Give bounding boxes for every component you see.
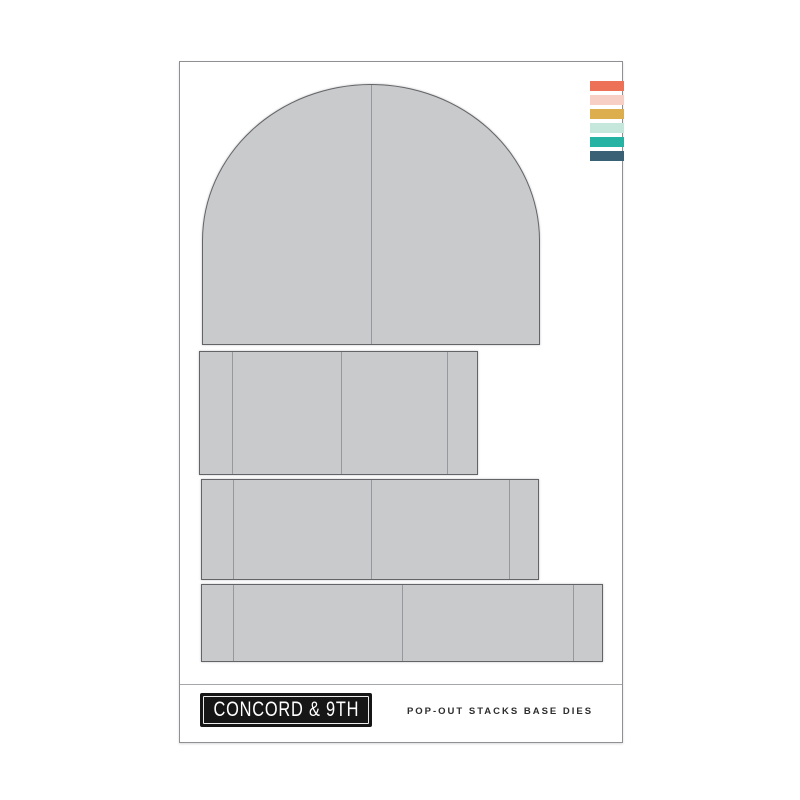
color-swatch-navy bbox=[590, 151, 624, 161]
color-swatch-blush bbox=[590, 95, 624, 105]
die-score-line bbox=[341, 352, 342, 474]
die-score-line bbox=[573, 585, 574, 661]
color-swatch-mint bbox=[590, 123, 624, 133]
color-swatch-teal bbox=[590, 137, 624, 147]
die-score-line bbox=[233, 585, 234, 661]
die-score-line bbox=[402, 585, 403, 661]
brand-logo-frame: CONCORD & 9TH bbox=[203, 696, 369, 724]
footer-divider bbox=[180, 684, 622, 685]
die-score-line bbox=[233, 480, 234, 579]
color-swatch-gold bbox=[590, 109, 624, 119]
die-score-line bbox=[509, 480, 510, 579]
panel-die-medium bbox=[201, 479, 539, 580]
die-score-line bbox=[447, 352, 448, 474]
panel-die-large bbox=[201, 584, 603, 662]
die-score-line bbox=[371, 480, 372, 579]
product-title: POP-OUT STACKS BASE DIES bbox=[380, 705, 620, 719]
product-card: CONCORD & 9TH POP-OUT STACKS BASE DIES bbox=[179, 61, 623, 743]
die-score-line bbox=[371, 85, 372, 344]
arch-base-die bbox=[202, 84, 540, 345]
die-score-line bbox=[232, 352, 233, 474]
brand-logo: CONCORD & 9TH bbox=[200, 693, 372, 727]
brand-logo-text: CONCORD & 9TH bbox=[213, 698, 359, 722]
product-image: CONCORD & 9TH POP-OUT STACKS BASE DIES bbox=[0, 0, 800, 800]
panel-die-small bbox=[199, 351, 478, 475]
color-swatch-coral bbox=[590, 81, 624, 91]
